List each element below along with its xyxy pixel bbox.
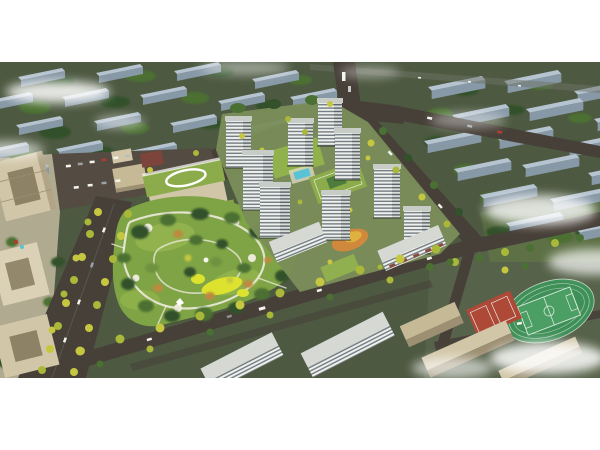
residential-tower xyxy=(259,182,291,239)
page xyxy=(0,0,600,450)
residential-tower xyxy=(287,118,314,167)
residential-tower xyxy=(334,128,361,181)
residential-tower xyxy=(321,190,351,241)
park-canopy xyxy=(204,258,209,263)
aerial-render-canvas xyxy=(0,62,600,378)
aerial-render xyxy=(0,62,600,378)
